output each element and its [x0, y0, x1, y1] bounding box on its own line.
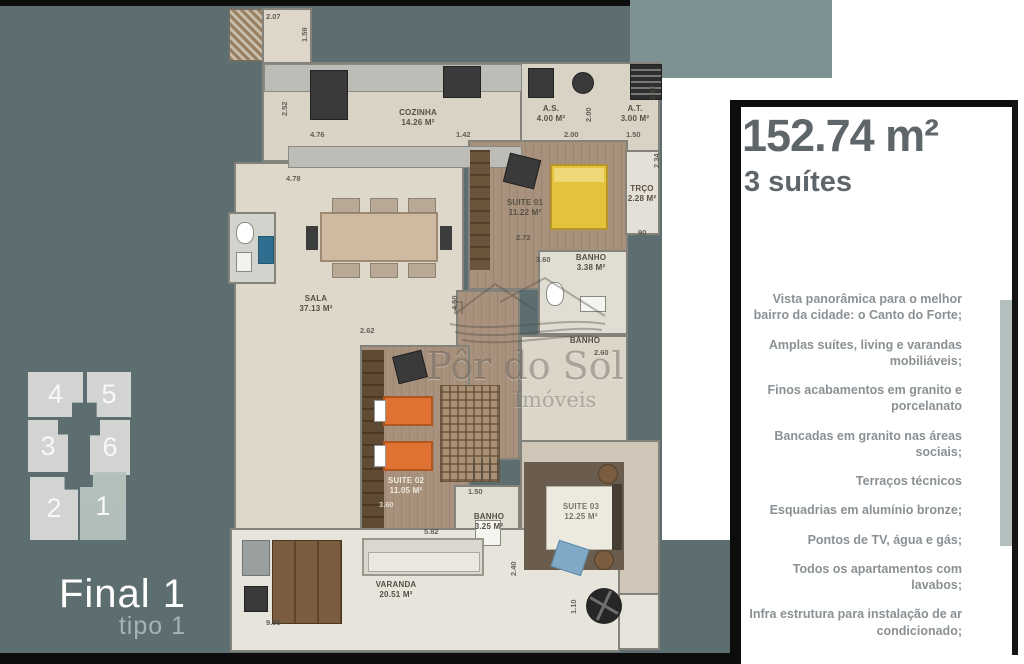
room-label-banho01: BANHO 3.38 M² — [546, 253, 636, 273]
feature-item: Terraços técnicos — [740, 473, 962, 489]
dimension: 4.76 — [310, 130, 325, 139]
kitchen-counter — [264, 64, 522, 92]
grill — [630, 64, 662, 100]
keyplan-unit-3: 3 — [28, 420, 68, 472]
dining-chair — [370, 198, 398, 213]
room-name: A.T. — [590, 104, 680, 114]
teal-bottom-right-patch — [662, 540, 736, 664]
dining-chair — [408, 198, 436, 213]
dimension: 2.72 — [516, 233, 531, 242]
dimension: 2.20 — [648, 85, 657, 100]
feature-item: Esquadrias em alumínio bronze; — [740, 502, 962, 518]
dimension: 2.00 — [564, 130, 579, 139]
dining-chair — [440, 226, 452, 250]
area-title: 152.74 m² — [742, 110, 1002, 162]
deck-table — [272, 540, 342, 624]
room-label-as: A.S. 4.00 M² — [506, 104, 596, 124]
room-name: A.S. — [506, 104, 596, 114]
dimension: 2.62 — [360, 326, 375, 335]
feature-item: Infra estrutura para instalação de ar co… — [740, 606, 962, 639]
floor-plan: COZINHA 14.26 M² A.S. 4.00 M² A.T. 3.00 … — [228, 0, 662, 656]
dimension: 1.10 — [569, 599, 578, 614]
dimension: 2.40 — [509, 561, 518, 576]
room-name: VARANDA — [351, 580, 441, 590]
washing-machine — [528, 68, 554, 98]
dimension: 9.98 — [266, 618, 281, 627]
balcony-sofa-seat — [368, 552, 480, 572]
room-area: 20.51 M² — [351, 590, 441, 600]
tipo-label: tipo 1 — [34, 612, 186, 641]
room-name: TRÇO — [597, 184, 687, 194]
feature-item: Finos acabamentos em granito e porcelana… — [740, 382, 962, 415]
bathroom01-toilet — [546, 282, 564, 306]
room-name: SUITE 02 — [361, 476, 451, 486]
lavabo-cabinet — [258, 236, 274, 264]
dimension: 2.52 — [280, 101, 289, 116]
suites-subtitle: 3 suítes — [744, 166, 1004, 199]
suite02-bed — [383, 441, 433, 471]
suite02-pillow — [374, 400, 386, 422]
fridge — [310, 70, 348, 120]
dimension: 2.07 — [266, 12, 281, 21]
dimension: 2.60 — [594, 348, 609, 357]
room-name: BANHO — [444, 512, 534, 522]
room-area: 3.38 M² — [546, 263, 636, 273]
keyplan-unit-6: 6 — [90, 420, 130, 475]
room-label-banho02: BANHO — [540, 336, 630, 346]
dining-chair — [332, 263, 360, 278]
top-black-edge — [0, 0, 630, 6]
laundry-tub — [572, 72, 594, 94]
suite03-side-table — [594, 550, 614, 570]
feature-item: Bancadas em granito nas áreas sociais; — [740, 428, 962, 461]
room-name: SUITE 01 — [480, 198, 570, 208]
dining-chair — [408, 263, 436, 278]
keyplan-unit-4: 4 — [28, 372, 83, 417]
room-area: 2.28 M² — [597, 194, 687, 204]
dimension: 4.50 — [450, 295, 459, 310]
planter — [242, 540, 270, 576]
frame-line-right — [1012, 100, 1018, 655]
room-area: 11.05 M² — [361, 486, 451, 496]
room-name: BANHO — [540, 336, 630, 346]
ac-unit — [244, 586, 268, 612]
room-label-terraco: TRÇO 2.28 M² — [597, 184, 687, 204]
feature-item: Pontos de TV, água e gás; — [740, 532, 962, 548]
dimension: 90 — [638, 228, 646, 237]
room-label-at: A.T. 3.00 M² — [590, 104, 680, 124]
room-area: 12.25 M² — [536, 512, 626, 522]
room-label-varanda: VARANDA 20.51 M² — [351, 580, 441, 600]
room-area: 3.25 M² — [444, 522, 534, 532]
dimension: 2.00 — [584, 107, 593, 122]
room-label-sala: SALA 37.13 M² — [271, 294, 361, 314]
sink — [236, 252, 252, 272]
bathroom01-sink — [580, 296, 606, 312]
room-area: 11.22 M² — [480, 208, 570, 218]
room-area: 37.13 M² — [271, 304, 361, 314]
bottom-black-edge — [0, 653, 741, 664]
dimension: 1.42 — [456, 130, 471, 139]
room-label-cozinha: COZINHA 14.26 M² — [373, 108, 463, 128]
gray-side-bar — [1000, 300, 1012, 546]
stove — [443, 66, 481, 98]
room-name: SUITE 03 — [536, 502, 626, 512]
frame-line-left — [730, 100, 741, 664]
technical-terrace-hatch — [228, 8, 264, 62]
feature-item: Vista panorâmica para o melhor bairro da… — [740, 291, 962, 324]
room-label-banho03: BANHO 3.25 M² — [444, 512, 534, 532]
dining-chair — [332, 198, 360, 213]
feature-item: Todos os apartamentos com lavabos; — [740, 561, 962, 594]
room-area: 3.00 M² — [590, 114, 680, 124]
dining-chair — [306, 226, 318, 250]
room-area: 4.00 M² — [506, 114, 596, 124]
frame-line-top — [730, 100, 1018, 107]
toilet — [236, 222, 254, 244]
dimension: 1.50 — [468, 487, 483, 496]
suite01-pillows — [554, 168, 604, 182]
suite02-pillow — [374, 445, 386, 467]
suite02-bed — [383, 396, 433, 426]
dimension: 1.59 — [300, 27, 309, 42]
room-name: COZINHA — [373, 108, 463, 118]
final-label: Final 1 — [34, 572, 186, 617]
features-list: Vista panorâmica para o melhor bairro da… — [740, 291, 962, 639]
dimension: 2.34 — [652, 153, 661, 168]
dining-table — [320, 212, 438, 262]
room-area: 14.26 M² — [373, 118, 463, 128]
room-name: BANHO — [546, 253, 636, 263]
dimension: 1.50 — [626, 130, 641, 139]
feature-item: Amplas suítes, living e varandas mobiliá… — [740, 337, 962, 370]
room-label-suite02: SUITE 02 11.05 M² — [361, 476, 451, 496]
closet — [440, 385, 500, 482]
dimension: 3.60 — [536, 255, 551, 264]
dining-chair — [370, 263, 398, 278]
keyplan-unit-2: 2 — [30, 477, 78, 540]
key-plan: 4 5 3 6 2 1 — [28, 372, 128, 542]
floorplan-flyer: COZINHA 14.26 M² A.S. 4.00 M² A.T. 3.00 … — [0, 0, 1024, 664]
keyplan-unit-5: 5 — [87, 372, 131, 417]
room-label-suite03: SUITE 03 12.25 M² — [536, 502, 626, 522]
suite03-side-table — [598, 464, 618, 484]
dimension: 5.82 — [424, 527, 439, 536]
dimension: 3.60 — [379, 500, 394, 509]
room-label-suite01: SUITE 01 11.22 M² — [480, 198, 570, 218]
dimension: 4.78 — [286, 174, 301, 183]
room-name: SALA — [271, 294, 361, 304]
keyplan-unit-1-highlighted: 1 — [80, 472, 126, 540]
